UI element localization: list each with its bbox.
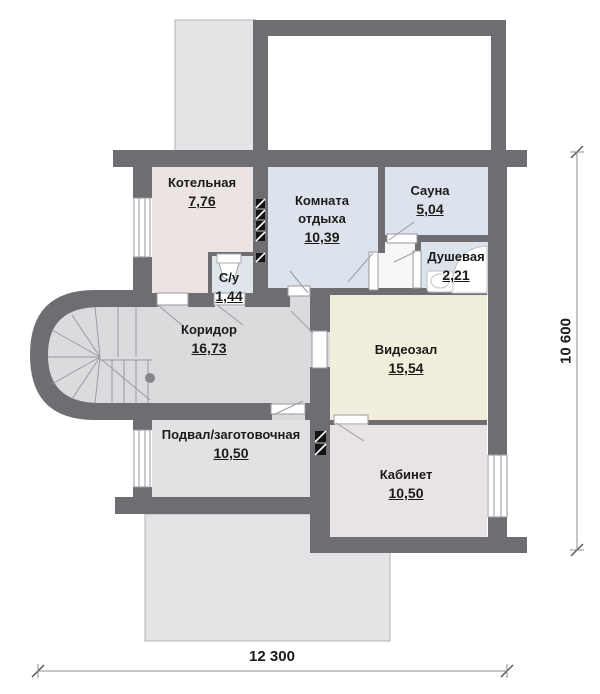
window-podval [134,430,150,487]
room-kabinet [330,425,487,537]
floor-plan-drawing [0,0,600,694]
room-komnata-otdyha [268,167,378,295]
window-kotelnaya [134,198,150,257]
room-sauna [385,167,488,242]
window-kabinet [488,455,507,517]
room-videozal [330,295,487,420]
room-koridor [152,293,330,420]
terrace-top [175,20,256,151]
floor-plan: Котельная 7,76 Комната отдыха 10,39 Саун… [0,0,600,694]
stair-newel [145,373,155,383]
sink [427,271,453,292]
room-podval [152,420,310,497]
courtyard [268,36,491,150]
